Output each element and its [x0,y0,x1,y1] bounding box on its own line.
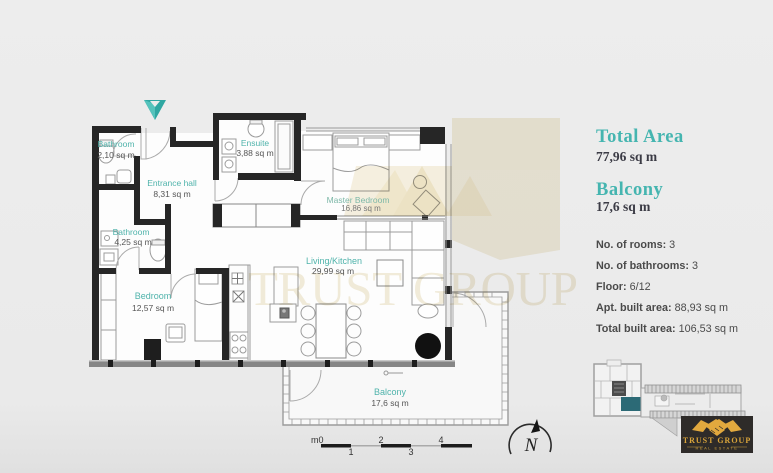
svg-text:Bedroom: Bedroom [135,291,172,301]
svg-text:TRUST GROUP: TRUST GROUP [683,436,751,445]
svg-text:m0: m0 [311,435,324,445]
svg-text:Entrance hall: Entrance hall [147,178,197,188]
svg-text:4,25 sq m: 4,25 sq m [114,237,151,247]
svg-text:No. of rooms: 3: No. of rooms: 3 [596,239,675,251]
svg-text:16,86 sq m: 16,86 sq m [341,204,381,213]
svg-text:Living/Kitchen: Living/Kitchen [306,256,362,266]
svg-text:TRUST GROUP: TRUST GROUP [248,261,578,316]
svg-text:Floor: 6/12: Floor: 6/12 [596,281,651,293]
svg-text:Apt. built area: 88,93 sq m: Apt. built area: 88,93 sq m [596,302,728,314]
svg-text:8,31 sq m: 8,31 sq m [153,189,190,199]
svg-text:Bathroom: Bathroom [113,227,150,237]
svg-text:12,57 sq m: 12,57 sq m [132,303,174,313]
svg-text:4: 4 [438,435,443,445]
svg-text:Ensuite: Ensuite [241,138,270,148]
svg-text:Bathroom: Bathroom [98,139,135,149]
svg-text:17,6 sq m: 17,6 sq m [371,398,408,408]
svg-text:Balcony: Balcony [374,387,407,397]
svg-text:1: 1 [348,447,353,457]
svg-text:3,88 sq m: 3,88 sq m [236,148,273,158]
svg-text:77,96 sq m: 77,96 sq m [596,149,658,164]
svg-text:Balcony: Balcony [596,180,663,200]
svg-text:2,10 sq m: 2,10 sq m [97,150,134,160]
svg-text:REAL ESTATE: REAL ESTATE [696,446,739,451]
svg-text:3: 3 [408,447,413,457]
svg-text:Total built area: 106,53 sq m: Total built area: 106,53 sq m [596,323,738,335]
svg-text:No. of bathrooms: 3: No. of bathrooms: 3 [596,260,698,272]
svg-text:Total Area: Total Area [596,127,684,147]
svg-text:2: 2 [378,435,383,445]
svg-text:N: N [524,435,539,456]
svg-text:29,99 sq m: 29,99 sq m [312,266,354,276]
svg-text:17,6 sq m: 17,6 sq m [596,199,651,214]
